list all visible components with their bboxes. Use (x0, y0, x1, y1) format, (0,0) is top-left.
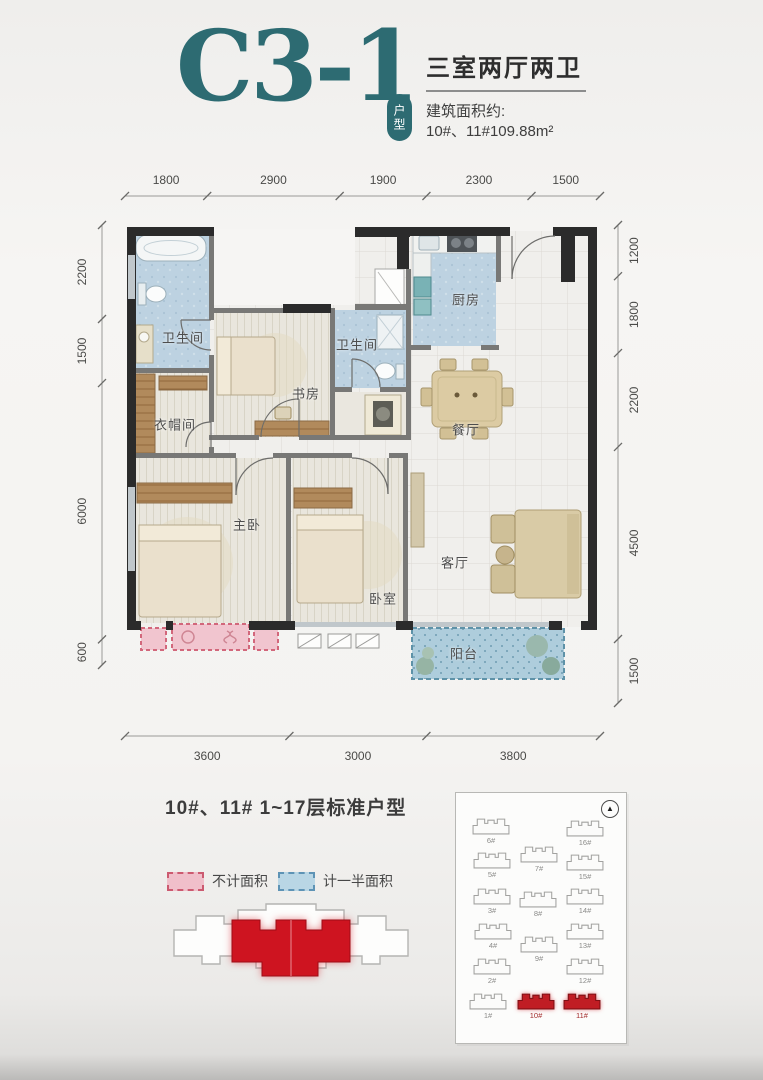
toilet-tank (396, 364, 404, 379)
siteplan-building-14: 14# (563, 887, 607, 915)
layout-title: 三室两厅两卫 (426, 48, 582, 83)
siteplan-building-8: 8# (516, 890, 560, 918)
dimension-rail-right: 12001800220045001500 (604, 225, 648, 703)
legend-blue-label: 计一半面积 (323, 871, 393, 891)
unit-code: C3-1 (176, 16, 416, 118)
siteplan-building-16: 16# (563, 819, 607, 847)
wardrobe (294, 488, 352, 508)
building-footprint-icon (472, 817, 510, 835)
unit-type-badge: 户型 (387, 94, 412, 141)
building-footprint-icon (566, 922, 604, 940)
dim-label: 1500 (75, 337, 89, 364)
dresser (137, 483, 232, 503)
dim-label: 1800 (153, 173, 180, 187)
dim-label: 1900 (370, 173, 397, 187)
header-divider (426, 90, 586, 92)
kitchen-sink (419, 236, 439, 250)
siteplan-building-5: 5# (470, 851, 514, 879)
building-number: 12# (579, 976, 592, 985)
dim-label: 2300 (466, 173, 493, 187)
dim-label: 1500 (552, 173, 579, 187)
legend-pink-label: 不计面积 (212, 871, 268, 891)
building-footprint-icon (566, 957, 604, 975)
siteplan-building-9: 9# (517, 935, 561, 963)
building-number: 11# (576, 1011, 588, 1020)
building-footprint-icon (520, 845, 558, 863)
tv-console (411, 473, 424, 547)
siteplan-building-7: 7# (517, 845, 561, 873)
wardrobe-shelf (159, 376, 207, 390)
bed-pillows (139, 525, 221, 541)
siteplan-building-3: 3# (470, 887, 514, 915)
building-number: 15# (579, 872, 592, 881)
bay-window-excluded (141, 628, 166, 650)
building-number: 8# (534, 909, 542, 918)
dim-label: 1200 (627, 237, 641, 264)
ac-platforms (298, 634, 379, 648)
dim-label: 2900 (260, 173, 287, 187)
building-number: 3# (488, 906, 496, 915)
legend-pink-swatch (167, 872, 204, 891)
dim-label: 3600 (194, 749, 221, 763)
table-decor (455, 393, 460, 398)
balcony-plant (526, 635, 548, 657)
building-number: 6# (487, 836, 495, 845)
building-footprint-icon (473, 957, 511, 975)
building-number: 10# (530, 1011, 543, 1020)
vanity (136, 325, 153, 363)
building-footprint-icon (519, 890, 557, 908)
legend-blue-swatch (278, 872, 315, 891)
burner (464, 238, 474, 248)
caption: 10#、11# 1~17层标准户型 (165, 793, 406, 820)
site-plan-buildings: 6#16#5#7#15#3#8#14#4#9#13#2#12#1#10#11# (456, 793, 626, 1043)
wardrobe (135, 374, 155, 453)
building-number: 2# (488, 976, 496, 985)
table-decor (473, 393, 478, 398)
dim-label: 4500 (627, 529, 641, 556)
burner (451, 238, 461, 248)
siteplan-building-15: 15# (563, 853, 607, 881)
siteplan-building-11: 11# (560, 992, 604, 1020)
sink (139, 332, 149, 342)
bed-pillows (297, 515, 363, 530)
desk-chair (275, 407, 291, 419)
building-footprint-icon (517, 992, 555, 1010)
building-footprint (166, 892, 418, 1000)
dim-label: 600 (75, 642, 89, 662)
bed-pillows (217, 337, 231, 395)
toilet-tank (138, 283, 146, 305)
building-number: 4# (489, 941, 497, 950)
building-number: 16# (579, 838, 592, 847)
building-footprint-icon (566, 853, 604, 871)
dim-label: 3000 (345, 749, 372, 763)
siteplan-building-10: 10# (514, 992, 558, 1020)
recess-area (214, 229, 355, 305)
balcony-plant (416, 657, 434, 675)
fridge (414, 277, 431, 297)
floor-plan-drawing (125, 225, 600, 700)
siteplan-building-1: 1# (466, 992, 510, 1020)
dim-label: 1500 (627, 657, 641, 684)
side-table (496, 546, 514, 564)
building-footprint-icon (474, 922, 512, 940)
building-number: 5# (488, 870, 496, 879)
building-footprint-icon (473, 887, 511, 905)
building-number: 7# (535, 864, 543, 873)
dimension-rail-left: 220015006000600 (72, 225, 116, 665)
washing-machine-drum (376, 407, 390, 421)
building-footprint-icon (566, 819, 604, 837)
site-plan: ▲ 6#16#5#7#15#3#8#14#4#9#13#2#12#1#10#11… (455, 792, 627, 1044)
siteplan-building-4: 4# (471, 922, 515, 950)
dim-label: 2200 (627, 386, 641, 413)
dim-label: 2200 (75, 258, 89, 285)
building-number: 13# (579, 941, 592, 950)
toilet (146, 286, 166, 302)
sofa-back (567, 514, 579, 594)
dimension-rail-bottom: 360030003800 (125, 724, 600, 768)
dimension-rail-top: 18002900190023001500 (125, 166, 600, 212)
building-footprint-icon (520, 935, 558, 953)
dim-label: 6000 (75, 498, 89, 525)
siteplan-building-6: 6# (469, 817, 513, 845)
legend-half-area: 计一半面积 (278, 871, 393, 891)
legend-excluded-area: 不计面积 (167, 871, 268, 891)
area-value: 10#、11#109.88m² (426, 120, 553, 141)
cabinet (414, 299, 431, 315)
building-footprint-icon (473, 851, 511, 869)
dining-table (432, 371, 502, 427)
armchair (491, 565, 515, 593)
desk (255, 421, 329, 436)
siteplan-building-12: 12# (563, 957, 607, 985)
floor-plan: 卫生间衣帽间主卧书房卫生间厨房餐厅客厅卧室阳台 (125, 225, 600, 700)
building-number: 14# (579, 906, 592, 915)
area-label: 建筑面积约: (426, 100, 505, 121)
balcony-plant (422, 647, 434, 659)
bay-window-excluded (172, 624, 249, 650)
building-number: 1# (484, 1011, 492, 1020)
building-number: 9# (535, 954, 543, 963)
balcony-plant (542, 657, 560, 675)
dim-label: 1800 (627, 301, 641, 328)
siteplan-building-13: 13# (563, 922, 607, 950)
armchair (491, 515, 515, 543)
building-footprint-icon (469, 992, 507, 1010)
building-footprint-icon (563, 992, 601, 1010)
bathtub (136, 235, 206, 261)
bay-window-excluded (254, 628, 278, 650)
building-footprint-icon (566, 887, 604, 905)
dim-label: 3800 (500, 749, 527, 763)
siteplan-building-2: 2# (470, 957, 514, 985)
floorplan-poster: C3-1 户型 三室两厅两卫 建筑面积约: 10#、11#109.88m² 18… (0, 0, 763, 1080)
